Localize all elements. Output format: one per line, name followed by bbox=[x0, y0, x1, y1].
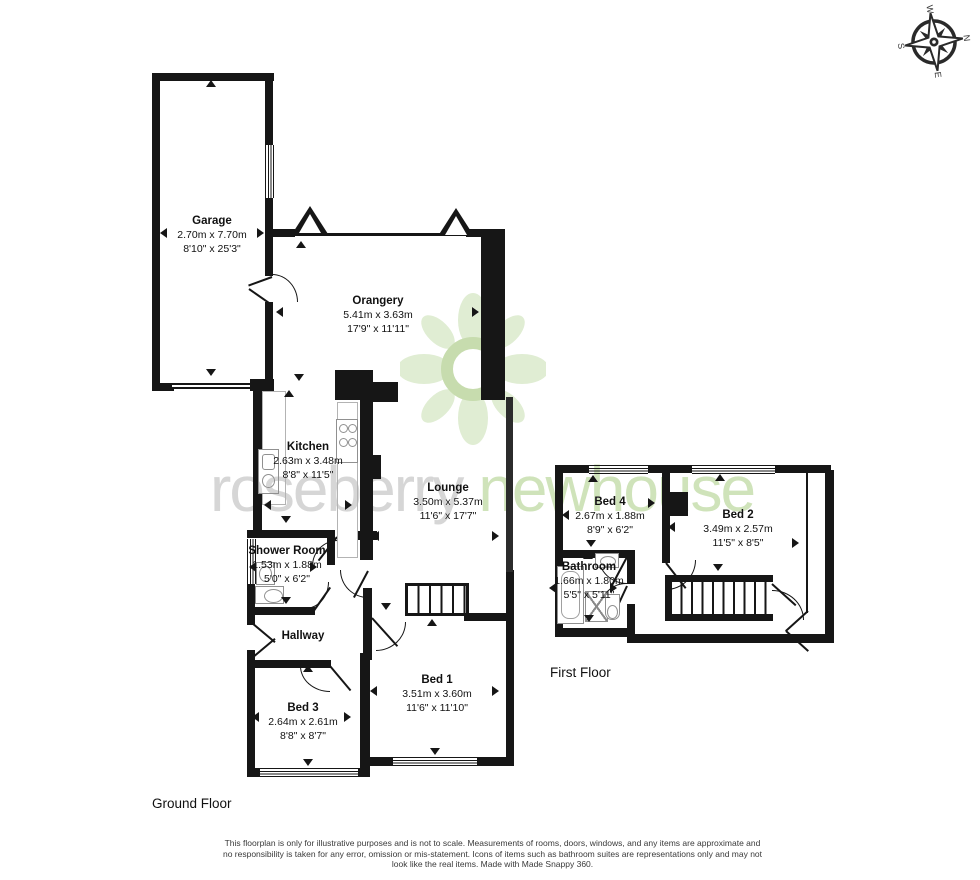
measure-arrow-right bbox=[472, 307, 479, 317]
window bbox=[589, 465, 648, 474]
measure-arrow-down bbox=[281, 597, 291, 604]
room-name: Bathroom bbox=[531, 560, 647, 574]
measure-arrow-left bbox=[372, 531, 379, 541]
measure-arrow-down bbox=[206, 369, 216, 376]
toilet-icon bbox=[255, 586, 284, 604]
room-label-orangery: Orangery 5.41m x 3.63m 17'9" x 11'11" bbox=[308, 294, 448, 336]
measure-arrow-up bbox=[588, 475, 598, 482]
roof-light-icon bbox=[438, 208, 474, 236]
window bbox=[260, 768, 358, 777]
compass-w: W bbox=[924, 4, 935, 14]
roof-light-icon bbox=[292, 206, 328, 234]
compass-rose: N E S W bbox=[896, 4, 972, 80]
wall-segment bbox=[506, 570, 514, 766]
room-label-kitchen: Kitchen 2.63m x 3.48m 8'8" x 11'5" bbox=[238, 440, 378, 482]
door-arc bbox=[376, 622, 406, 651]
measure-arrow-down bbox=[430, 748, 440, 755]
measure-arrow-down bbox=[294, 374, 304, 381]
window bbox=[692, 465, 775, 474]
door-leaf bbox=[329, 665, 351, 691]
room-dims-metric: 3.51m x 3.60m bbox=[367, 687, 507, 701]
floorplan-canvas: Garage 2.70m x 7.70m 8'10" x 25'3" Orang… bbox=[0, 0, 980, 880]
room-dims-metric: 3.49m x 2.57m bbox=[668, 522, 808, 536]
window bbox=[265, 145, 274, 198]
door-leaf bbox=[248, 276, 272, 286]
chimney-breast bbox=[373, 382, 398, 402]
measure-arrow-right bbox=[345, 500, 352, 510]
room-dims-imperial: 5'5" x 5'11" bbox=[531, 588, 647, 602]
room-label-bed1: Bed 1 3.51m x 3.60m 11'6" x 11'10" bbox=[367, 673, 507, 715]
room-name: Kitchen bbox=[238, 440, 378, 454]
room-label-bed2: Bed 2 3.49m x 2.57m 11'5" x 8'5" bbox=[668, 508, 808, 550]
room-dims-metric: 2.64m x 2.61m bbox=[233, 715, 373, 729]
room-dims-imperial: 8'10" x 25'3" bbox=[142, 242, 282, 256]
room-dims-imperial: 11'5" x 8'5" bbox=[668, 536, 808, 550]
window bbox=[393, 757, 477, 766]
room-dims-metric: 1.66m x 1.80m bbox=[531, 574, 647, 588]
ground-floor-label: Ground Floor bbox=[152, 796, 232, 811]
room-dims-imperial: 11'6" x 11'10" bbox=[367, 701, 507, 715]
wall-segment bbox=[363, 588, 372, 660]
room-label-garage: Garage 2.70m x 7.70m 8'10" x 25'3" bbox=[142, 214, 282, 256]
wall-segment bbox=[247, 530, 335, 538]
room-dims-metric: 2.70m x 7.70m bbox=[142, 228, 282, 242]
measure-arrow-right bbox=[492, 531, 499, 541]
disclaimer-text: This floorplan is only for illustrative … bbox=[220, 838, 765, 870]
wall-segment bbox=[265, 302, 273, 388]
room-dims-metric: 3.50m x 5.37m bbox=[376, 495, 520, 509]
compass-n: N bbox=[961, 34, 972, 42]
room-label-bed4: Bed 4 2.67m x 1.88m 8'9" x 6'2" bbox=[540, 495, 680, 537]
wall-segment bbox=[481, 229, 505, 400]
wall-segment bbox=[555, 628, 635, 637]
staircase bbox=[405, 583, 469, 616]
wall-segment bbox=[247, 768, 260, 777]
compass-s: S bbox=[896, 42, 907, 49]
measure-arrow-down bbox=[281, 516, 291, 523]
room-dims-metric: 5.41m x 3.63m bbox=[308, 308, 448, 322]
room-name: Bed 1 bbox=[367, 673, 507, 687]
measure-arrow-down bbox=[586, 540, 596, 547]
room-dims-metric: 2.63m x 3.48m bbox=[238, 454, 378, 468]
first-floor-label: First Floor bbox=[550, 665, 611, 680]
chimney-breast bbox=[335, 370, 373, 400]
wall-segment bbox=[368, 757, 393, 766]
room-dims-imperial: 8'8" x 11'5" bbox=[238, 468, 378, 482]
measure-arrow-up bbox=[281, 531, 291, 538]
room-dims-imperial: 8'9" x 6'2" bbox=[540, 523, 680, 537]
room-dims-metric: 1.53m x 1.88m bbox=[227, 558, 347, 572]
room-label-bathroom: Bathroom 1.66m x 1.80m 5'5" x 5'11" bbox=[531, 560, 647, 602]
measure-arrow-up bbox=[284, 390, 294, 397]
compass-e: E bbox=[933, 71, 944, 78]
measure-arrow-left bbox=[264, 500, 271, 510]
room-dims-imperial: 8'8" x 8'7" bbox=[233, 729, 373, 743]
wall-segment bbox=[627, 604, 635, 632]
room-label-lounge: Lounge 3.50m x 5.37m 11'6" x 17'7" bbox=[376, 481, 520, 523]
room-dims-imperial: 11'6" x 17'7" bbox=[376, 509, 520, 523]
wall-segment bbox=[265, 73, 273, 145]
wall-segment bbox=[825, 470, 834, 643]
measure-arrow-up bbox=[206, 80, 216, 87]
measure-arrow-up bbox=[715, 474, 725, 481]
compass-icon: N E S W bbox=[896, 4, 972, 80]
measure-arrow-down bbox=[303, 759, 313, 766]
door-leaf bbox=[248, 288, 271, 305]
wall-segment bbox=[648, 465, 692, 473]
measure-arrow-down bbox=[713, 564, 723, 571]
door-arc bbox=[305, 582, 329, 609]
room-name: Bed 2 bbox=[668, 508, 808, 522]
measure-arrow-left bbox=[276, 307, 283, 317]
wall-segment bbox=[152, 383, 174, 391]
measure-arrow-down bbox=[584, 615, 594, 622]
measure-arrow-up bbox=[296, 241, 306, 248]
room-name: Shower Room bbox=[227, 544, 347, 558]
room-name: Bed 3 bbox=[233, 701, 373, 715]
room-dims-metric: 2.67m x 1.88m bbox=[540, 509, 680, 523]
room-dims-imperial: 17'9" x 11'11" bbox=[308, 322, 448, 336]
measure-arrow-up bbox=[303, 665, 313, 672]
room-label-bed3: Bed 3 2.64m x 2.61m 8'8" x 8'7" bbox=[233, 701, 373, 743]
garage-door-opening bbox=[172, 383, 252, 389]
room-label-hallway: Hallway bbox=[263, 629, 343, 643]
room-name: Garage bbox=[142, 214, 282, 228]
room-name: Orangery bbox=[308, 294, 448, 308]
door-arc bbox=[272, 274, 298, 302]
room-name: Lounge bbox=[376, 481, 520, 495]
room-dims-imperial: 5'0" x 6'2" bbox=[227, 572, 347, 586]
wall-segment bbox=[775, 465, 831, 473]
room-name: Hallway bbox=[263, 629, 343, 643]
measure-arrow-up bbox=[427, 619, 437, 626]
wall-segment bbox=[627, 634, 834, 643]
door-arc bbox=[772, 590, 804, 620]
room-label-shower-room: Shower Room 1.53m x 1.88m 5'0" x 6'2" bbox=[227, 544, 347, 586]
measure-arrow-up bbox=[583, 552, 593, 559]
measure-arrow-down bbox=[381, 603, 391, 610]
room-name: Bed 4 bbox=[540, 495, 680, 509]
